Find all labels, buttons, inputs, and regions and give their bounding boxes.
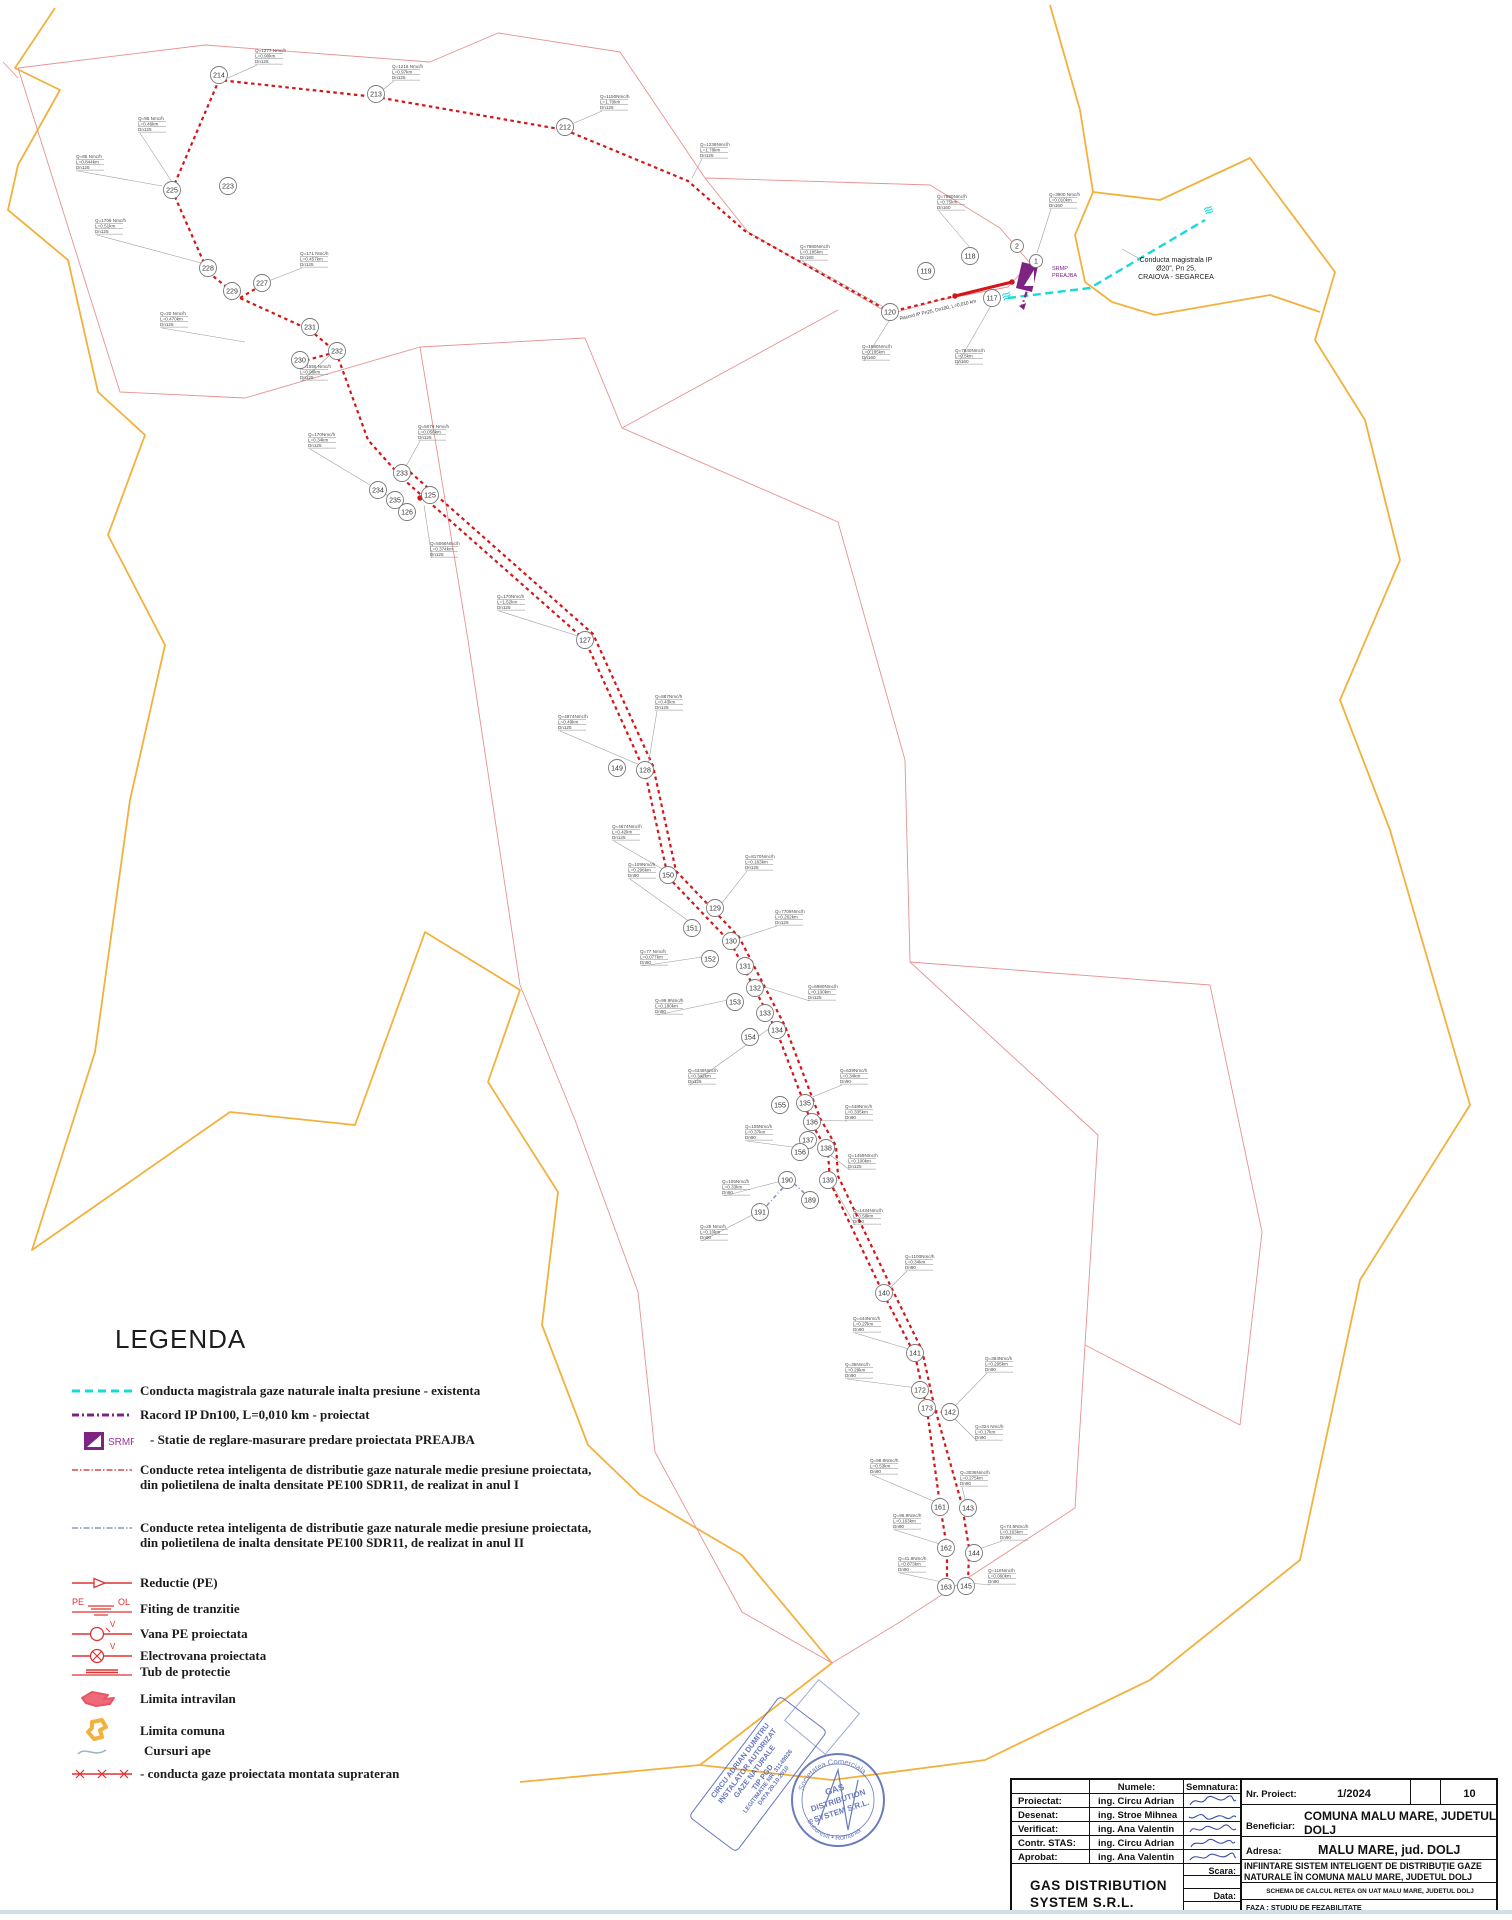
pipe-data-label: L=0.53km xyxy=(870,1463,890,1468)
drawing-sheet: ≋≋Q=7680Nmc/hL=0.75kmDn160Q=3900 Nmc/hL=… xyxy=(0,0,1512,1920)
role-name: ing. Circu Adrian xyxy=(1090,1794,1184,1808)
map-node-number: 144 xyxy=(968,1551,980,1558)
legend-item-intravilan: Limita intravilan xyxy=(70,1688,460,1712)
pipe-data-label: L=0.180km xyxy=(655,1003,678,1008)
pipe-data-label: L=0.077km xyxy=(640,954,663,959)
pipe-data-label: Dn125 xyxy=(612,835,626,840)
map-node-number: 190 xyxy=(781,1178,793,1185)
scara-value-cell xyxy=(1184,1876,1240,1889)
legend-item-fiting: PE OL Fiting de tranzitie xyxy=(70,1597,460,1621)
map-node-number: 127 xyxy=(579,638,591,645)
red-dashdot-line-icon xyxy=(70,1460,134,1480)
label-leader xyxy=(692,159,702,178)
pipe-data-label: L=0.185km xyxy=(862,349,885,354)
pipe-data-label: Dn125 xyxy=(700,153,714,158)
label-leader xyxy=(97,235,205,264)
pipe-data-label: Q=7640Nmc/h xyxy=(955,348,985,353)
signature-cell xyxy=(1184,1836,1240,1850)
pipe-data-label: Dn90 xyxy=(845,1373,856,1378)
map-node-number: 129 xyxy=(709,906,721,913)
pipe-data-label: Dn125 xyxy=(558,725,572,730)
legend-item-vana: V Vana PE proiectata xyxy=(70,1621,460,1643)
map-annotation: SRMPPREAJBA xyxy=(1052,266,1077,279)
pipe-data-label: Dn125 xyxy=(392,75,406,80)
pipe-data-label: Q=95 Nmc/h xyxy=(138,116,164,121)
label-leader xyxy=(572,111,602,124)
transition-fitting-icon: PE OL xyxy=(70,1595,134,1621)
pipe-data-label: Dn90 xyxy=(655,1009,666,1014)
pipe-data-label: Q=7709Nmc/h xyxy=(775,909,805,914)
map-node-number: 214 xyxy=(213,73,225,80)
legend-item-year2: Conducte retea inteligenta de distributi… xyxy=(70,1520,610,1551)
label-leader xyxy=(810,1085,842,1098)
legend-item-tub: Tub de protectie xyxy=(70,1664,460,1682)
pipe-data-label: Dn160 xyxy=(937,205,951,210)
pipe-data-label: Dn125 xyxy=(95,229,109,234)
map-node-number: 213 xyxy=(370,92,382,99)
pipe-data-label: Dn90 xyxy=(700,1235,711,1240)
pipe-data-label: Dn125 xyxy=(430,552,444,557)
map-node-number: 191 xyxy=(754,1210,766,1217)
pipe-data-label: Q=6980Nmc/h xyxy=(808,984,838,989)
label-leader xyxy=(762,986,810,1001)
pipe-data-label: Q=41.8Nmc/h xyxy=(898,1556,927,1561)
legend-item-main-existing: Conducta magistrala gaze naturale inalta… xyxy=(70,1383,590,1401)
pipe-data-label: L=0.33km xyxy=(722,1184,742,1189)
map-node-number: 128 xyxy=(639,768,651,775)
label-leader xyxy=(888,1271,907,1290)
title-block: Numele: Semnatura: Proiectat: ing. Circu… xyxy=(1010,1778,1498,1912)
sheet-number: 10 xyxy=(1440,1780,1498,1805)
pipe-data-label: Dn125 xyxy=(138,127,152,132)
map-node-number: 150 xyxy=(662,873,674,880)
pipe-data-label: Q=20 Nmc/h xyxy=(160,311,186,316)
signature-cell xyxy=(1184,1850,1240,1864)
map-node-number: 189 xyxy=(804,1198,816,1205)
map-node-number: 119 xyxy=(920,269,931,276)
adresa-value: MALU MARE, jud. DOLJ xyxy=(1298,1837,1498,1860)
signature-cell xyxy=(1184,1822,1240,1836)
pipe-data-label: Dn125 xyxy=(808,995,822,1000)
pipe-data-label: Q=8170Nmc/h xyxy=(745,854,775,859)
pipe-data-label: Q=170Nmc/h xyxy=(497,594,525,599)
map-node-number: 145 xyxy=(960,1584,972,1591)
map-node-number: 173 xyxy=(921,1406,933,1413)
pipe-data-label: L=1.52km xyxy=(497,599,517,604)
pipe-data-label: L=0.163km xyxy=(1000,1529,1023,1534)
label-leader xyxy=(266,268,302,282)
pipe-data-label: L=0.056km xyxy=(418,429,441,434)
map-node-number: 140 xyxy=(878,1291,890,1298)
pipe-data-label: Q=7680Nmc/h xyxy=(800,244,830,249)
pipeline-year1 xyxy=(172,80,955,312)
pipe-data-label: L=0.342km xyxy=(688,1073,711,1078)
pipe-data-label: L=1.70km xyxy=(600,99,620,104)
map-node-number: 155 xyxy=(774,1103,786,1110)
label-leader xyxy=(630,879,690,922)
legend: LEGENDA Conducta magistrala gaze natural… xyxy=(70,1322,630,1802)
pipe-data-label: Q=384Nmc/h xyxy=(985,1356,1013,1361)
map-annotation-line: Conducta magistrala IP xyxy=(1140,257,1213,264)
watercourse-icon xyxy=(70,1741,134,1761)
pipe-data-label: Q=3036Nmc/h xyxy=(960,1470,990,1475)
map-node-number: 152 xyxy=(704,957,716,964)
pipe-data-label: Q=1277 Nmc/h xyxy=(255,48,286,53)
pipe-data-label: Dn160 xyxy=(1049,203,1063,208)
svg-text:V: V xyxy=(110,1642,116,1651)
label-leader xyxy=(1037,209,1051,253)
pipe-data-label: Q=77 Nmc/h xyxy=(640,949,666,954)
pipe-data-label: Dn90 xyxy=(745,1135,756,1140)
pipe-data-label: Q=171 Nmc/h xyxy=(300,251,329,256)
data-label: Data: xyxy=(1184,1889,1240,1902)
pipe-data-label: Q=99.9Nmc/h xyxy=(655,998,684,1003)
pipeline-year1 xyxy=(172,190,402,478)
pipe-data-label: L=0.100km xyxy=(808,989,831,994)
pipe-data-label: L=0.96km xyxy=(300,369,320,374)
pipe-data-label: Dn125 xyxy=(655,705,669,710)
pipe-data-label: Dn125 xyxy=(848,1164,862,1169)
map-node-number: 163 xyxy=(940,1585,952,1592)
signature-scribble xyxy=(1186,1837,1238,1849)
map-node-number: 227 xyxy=(256,281,268,288)
pipe-data-label: Q=448Nmc/h xyxy=(845,1104,873,1109)
pipe-data-label: Q=1434Nmc/h xyxy=(853,1208,883,1213)
legend-item-srmp: SRMP - Statie de reglare-masurare predar… xyxy=(70,1432,600,1454)
semnatura-header: Semnatura: xyxy=(1184,1780,1240,1794)
map-node-number: 120 xyxy=(884,310,896,317)
pipe-data-label: Dn125 xyxy=(497,605,511,610)
signature-scribble xyxy=(1186,1809,1238,1821)
pipe-data-label: Q=1236Nmc/h xyxy=(700,142,730,147)
pipe-data-label: Q=1706 Nmc/h xyxy=(95,218,126,223)
srmp-station-icon: SRMP xyxy=(70,1430,134,1454)
pipe-data-label: L=0.10km xyxy=(700,1229,720,1234)
protection-tube-icon xyxy=(70,1662,134,1682)
label-leader xyxy=(140,133,172,182)
sheet-bottom-edge xyxy=(0,1910,1512,1914)
nr-proiect-label: Nr. Proiect: xyxy=(1242,1780,1298,1805)
pipe-data-label: L=0.844km xyxy=(76,159,99,164)
label-leader xyxy=(560,731,640,765)
pipe-data-label: L=0.27km xyxy=(853,1321,873,1326)
pipe-data-label: Q=25 Nmc/h xyxy=(700,1224,726,1229)
map-node-number: 142 xyxy=(944,1410,956,1417)
empty-cell xyxy=(1410,1780,1440,1805)
pipe-data-label: L=0.46km xyxy=(138,121,158,126)
role-name: ing. Ana Valentin xyxy=(1090,1850,1184,1864)
pe-valve-icon: V xyxy=(70,1619,134,1643)
pipe-data-label: Q=85 Nmc/h xyxy=(76,154,102,159)
label-leader xyxy=(162,328,245,342)
map-node-number: 232 xyxy=(331,349,343,356)
map-annotation-line: SRMP xyxy=(1052,266,1068,272)
pipe-break-symbol: ≋ xyxy=(999,288,1014,306)
map-node-number: 139 xyxy=(822,1178,834,1185)
pipe-data-label: Dn125 xyxy=(160,322,174,327)
pipe-data-label: Dn90 xyxy=(853,1219,864,1224)
map-node-number: 118 xyxy=(964,254,975,261)
pipe-data-label: L=0.34km xyxy=(308,437,328,442)
beneficiar-label: Beneficiar: xyxy=(1242,1805,1298,1837)
label-leader xyxy=(747,1141,800,1148)
map-annotation: Racord IP Pn25, Dn100, L=0,010 km xyxy=(899,298,977,321)
map-node-number: 2 xyxy=(1015,244,1019,251)
pipe-data-label: Q=4874Nmc/h xyxy=(558,714,588,719)
pipe-data-label: Q=109Nmc/h xyxy=(628,862,656,867)
pipe-data-label: Q=1150Nmc/h xyxy=(600,94,630,99)
map-node-number: 231 xyxy=(304,325,316,332)
pipe-data-label: Dn90 xyxy=(898,1567,909,1572)
map-annotation-line: Racord IP Pn25, Dn100, L=0,010 km xyxy=(899,298,977,321)
pipe-data-label: Dn125 xyxy=(600,105,614,110)
map-node-number: 161 xyxy=(934,1505,946,1512)
adresa-label: Adresa: xyxy=(1242,1837,1298,1860)
role-label: Desenat: xyxy=(1012,1808,1090,1822)
pipe-data-label: L=0.34km xyxy=(840,1073,860,1078)
pipe-data-label: L=1.78km xyxy=(700,147,720,152)
numele-header: Numele: xyxy=(1090,1780,1184,1794)
pipe-data-label: Q=4674Nmc/h xyxy=(612,824,642,829)
legend-item-racord: Racord IP Dn100, L=0,010 km - proiectat xyxy=(70,1407,590,1425)
pipe-data-label: Dn90 xyxy=(893,1524,904,1529)
legend-item-reductie: Reductie (PE) xyxy=(70,1575,460,1593)
pipe-data-label: L=0.75km xyxy=(937,199,957,204)
pipe-data-label: Q=98.9Nmc/h xyxy=(870,1458,899,1463)
label-leader xyxy=(847,1379,917,1388)
project-title: INFIINTARE SISTEM INTELIGENT DE DISTRIBU… xyxy=(1242,1860,1498,1883)
pipe-data-label: Dn125 xyxy=(775,920,789,925)
label-leader xyxy=(900,1573,942,1582)
label-leader xyxy=(953,1373,987,1408)
role-label: Verificat: xyxy=(1012,1822,1090,1836)
pipe-data-label: Q=105Nmc/h xyxy=(722,1179,750,1184)
purple-dashdot-line-icon xyxy=(70,1405,134,1425)
label-leader xyxy=(740,926,777,938)
pipe-data-label: Dn90 xyxy=(640,960,651,965)
gray-dashdot-line-icon xyxy=(70,1518,134,1538)
legend-item-ape: Cursuri ape xyxy=(70,1743,464,1761)
pipe-data-label: Dn125 xyxy=(300,375,314,380)
pipe-data-label: L=0.374km xyxy=(430,546,453,551)
pipe-data-label: L=0.42km xyxy=(612,829,632,834)
role-name: ing. Circu Adrian xyxy=(1090,1836,1184,1850)
map-node-number: 136 xyxy=(806,1120,818,1127)
drawing-title: SCHEMA DE CALCUL RETEA GN UAT MALU MARE,… xyxy=(1242,1883,1498,1900)
map-node-number: 234 xyxy=(372,488,384,495)
racord-arrowhead xyxy=(1019,303,1026,310)
map-node-number: 117 xyxy=(986,296,997,303)
label-leader xyxy=(939,211,972,250)
pipe-data-label: L=0.060km xyxy=(988,1573,1011,1578)
pipe-data-label: L=0.185km xyxy=(800,249,823,254)
pipe-data-label: L=0.295km xyxy=(985,1361,1008,1366)
pipe-data-label: Q=1216 Nmc/h xyxy=(392,64,423,69)
map-node-number: 235 xyxy=(389,498,401,505)
map-node-number: 143 xyxy=(962,1506,974,1513)
intravilan-boundary-line xyxy=(3,62,18,78)
pipe-data-label: L=0.275km xyxy=(960,1475,983,1480)
pipe-data-label: Q=1100Nmc/h xyxy=(905,1254,935,1259)
map-node-number: 151 xyxy=(686,926,698,933)
label-leader xyxy=(895,1530,943,1545)
map-node-number: 1 xyxy=(1034,259,1038,266)
role-label: Proiectat: xyxy=(1012,1794,1090,1808)
pipe-data-label: L=0.29km xyxy=(845,1367,865,1372)
map-node-number: 141 xyxy=(909,1351,921,1358)
map-annotation-line: Ø20", Pn 25, xyxy=(1156,266,1196,273)
pipe-data-label: L=0.163km xyxy=(893,1518,916,1523)
pipe-data-label: Q=74.8Nmc/h xyxy=(1000,1524,1029,1529)
signature-scribble xyxy=(1186,1851,1238,1863)
label-leader xyxy=(78,171,162,186)
legend-title: LEGENDA xyxy=(115,1324,246,1355)
annotation-leader xyxy=(1122,249,1140,259)
label-leader xyxy=(832,1184,855,1225)
pipe-data-label: Dn125 xyxy=(418,435,432,440)
pipe-data-label: Q=35Nmc/h xyxy=(845,1362,870,1367)
nr-proiect-value: 1/2024 xyxy=(1298,1780,1410,1805)
map-node-number: 126 xyxy=(401,510,413,517)
label-leader xyxy=(499,611,578,636)
signature-cell xyxy=(1184,1794,1240,1808)
pipe-data-label: L=0.457km xyxy=(300,256,323,261)
pipe-break-symbol: ≋ xyxy=(1201,202,1216,220)
map-node-number: 212 xyxy=(559,125,571,132)
pipe-data-label: L=0.873km xyxy=(898,1561,921,1566)
intravilan-boundary-line xyxy=(622,310,838,428)
pipe-data-label: L=0.335km xyxy=(845,1109,868,1114)
beneficiar-value: COMUNA MALU MARE, JUDETUL DOLJ xyxy=(1298,1805,1498,1837)
pipe-data-label: L=0.100km xyxy=(848,1158,871,1163)
signature-scribble xyxy=(1186,1795,1238,1807)
map-node-number: 125 xyxy=(424,493,436,500)
pipe-data-label: Dn90 xyxy=(722,1190,733,1195)
pipe-data-label: L=0.58km xyxy=(853,1213,873,1218)
map-node-number: 223 xyxy=(222,184,234,191)
label-leader xyxy=(228,65,257,78)
legend-item-year1: Conducte retea inteligenta de distributi… xyxy=(70,1462,610,1493)
legend-item-suprateran: - conducta gaze proiectata montata supra… xyxy=(70,1766,590,1784)
pipe-data-label: L=0.262km xyxy=(775,914,798,919)
role-name: ing. Ana Valentin xyxy=(1090,1822,1184,1836)
map-node-number: 228 xyxy=(202,266,214,273)
svg-text:SRMP: SRMP xyxy=(108,1437,134,1448)
pipe-data-label: Dn125 xyxy=(745,865,759,870)
signature-scribble xyxy=(1186,1823,1238,1835)
pipe-data-label: L=0.43km xyxy=(655,699,675,704)
pipe-data-label: Dn90 xyxy=(853,1327,864,1332)
map-node-number: 133 xyxy=(759,1011,771,1018)
pipe-data-label: L=0.296km xyxy=(628,867,651,872)
pipe-data-label: Q=639Nmc/h xyxy=(840,1068,868,1073)
map-annotation: Conducta magistrala IPØ20", Pn 25,CRAIOV… xyxy=(1138,257,1214,281)
above-ground-pipe-icon xyxy=(70,1764,134,1784)
map-node-number: 132 xyxy=(749,986,761,993)
pipe-data-label: Q=1680Nmc/h xyxy=(862,344,892,349)
pipe-data-label: Q=170Nmc/h xyxy=(308,432,336,437)
map-node-number: 130 xyxy=(725,939,737,946)
map-annotation-line: PREAJBA xyxy=(1052,273,1077,279)
pipe-data-label: Q=105Nmc/h xyxy=(745,1124,773,1129)
pipe-data-label: Dn90 xyxy=(960,1481,971,1486)
label-leader xyxy=(952,1416,977,1441)
map-node-number: 149 xyxy=(611,766,623,773)
company-name: GAS DISTRIBUTION SYSTEM S.R.L. xyxy=(1012,1864,1184,1914)
pipe-data-label: L=0.010km xyxy=(1049,197,1072,202)
label-leader xyxy=(722,871,747,903)
pipe-data-label: L=0.37km xyxy=(745,1129,765,1134)
scara-label: Scara: xyxy=(1184,1864,1240,1876)
intravilan-limit-icon xyxy=(70,1686,134,1712)
pipe-data-label: Q=444Nmc/h xyxy=(853,1316,881,1321)
role-name: ing. Stroe Mihnea xyxy=(1090,1808,1184,1822)
map-node-number: 225 xyxy=(166,188,178,195)
pipe-data-label: L=0.90km xyxy=(255,53,275,58)
pipe-data-label: Dn125 xyxy=(300,262,314,267)
pipe-data-label: Dn90 xyxy=(628,873,639,878)
map-node-number: 233 xyxy=(396,471,408,478)
map-node-number: 153 xyxy=(729,1000,741,1007)
map-node-number: 135 xyxy=(799,1101,811,1108)
map-node-number: 154 xyxy=(744,1035,756,1042)
pipe-data-label: L=0.470km xyxy=(160,316,183,321)
map-node-number: 131 xyxy=(739,964,751,971)
pipe-data-label: L=0.17km xyxy=(975,1429,995,1434)
pipe-data-label: Q=5066Nmc/h xyxy=(430,541,460,546)
pipe-data-label: Q=7680Nmc/h xyxy=(937,194,967,199)
pipe-data-label: Q=118Nmc/h xyxy=(988,1568,1015,1573)
company-round-stamp: Societatea Comerciala Bucuresti • Romani… xyxy=(788,1750,888,1850)
map-node-number: 137 xyxy=(802,1138,814,1145)
pipe-data-label: Q=3900 Nmc/h xyxy=(1049,192,1080,197)
svg-text:PE: PE xyxy=(72,1597,84,1607)
label-leader xyxy=(648,711,657,766)
pipe-data-label: Q=96.9Nmc/h xyxy=(893,1513,922,1518)
label-leader xyxy=(802,261,882,306)
label-leader xyxy=(872,1475,938,1503)
pipe-data-label: Dn90 xyxy=(975,1435,986,1440)
pipe-data-label: Dn125 xyxy=(688,1079,702,1084)
map-node-number: 172 xyxy=(914,1388,926,1395)
pipe-data-label: Dn90 xyxy=(845,1115,856,1120)
role-label: Aprobat: xyxy=(1012,1850,1090,1864)
map-node-number: 156 xyxy=(794,1150,806,1157)
pipe-data-label: Dn125 xyxy=(76,165,90,170)
signature-cell xyxy=(1184,1808,1240,1822)
pipe-data-label: Q=887Nmc/h xyxy=(655,694,683,699)
empty-cell xyxy=(1012,1780,1090,1794)
pipe-data-label: Dn125 xyxy=(255,59,269,64)
intravilan-boundary-line xyxy=(910,962,1262,1425)
pipe-data-label: L=0.5km xyxy=(955,353,973,358)
junction-dot xyxy=(952,293,957,298)
map-node-number: 230 xyxy=(294,358,306,365)
map-node-number: 229 xyxy=(226,289,238,296)
commune-boundary-line xyxy=(1075,192,1320,315)
map-node-number: 134 xyxy=(771,1028,783,1035)
label-leader xyxy=(855,1333,912,1350)
pipe-data-label: L=0.34km xyxy=(905,1259,925,1264)
pipe-data-label: L=0.49km xyxy=(558,719,578,724)
junction-dot xyxy=(1009,279,1014,284)
pipe-data-label: Q=5076 Nmc/h xyxy=(418,424,449,429)
map-node-number: 162 xyxy=(940,1546,952,1553)
pipe-data-label: Dn90 xyxy=(988,1579,999,1584)
pipe-data-label: L=0.51km xyxy=(95,223,115,228)
pipe-data-label: Dn160 xyxy=(800,255,814,260)
pipe-data-label: L=0.97km xyxy=(392,69,412,74)
